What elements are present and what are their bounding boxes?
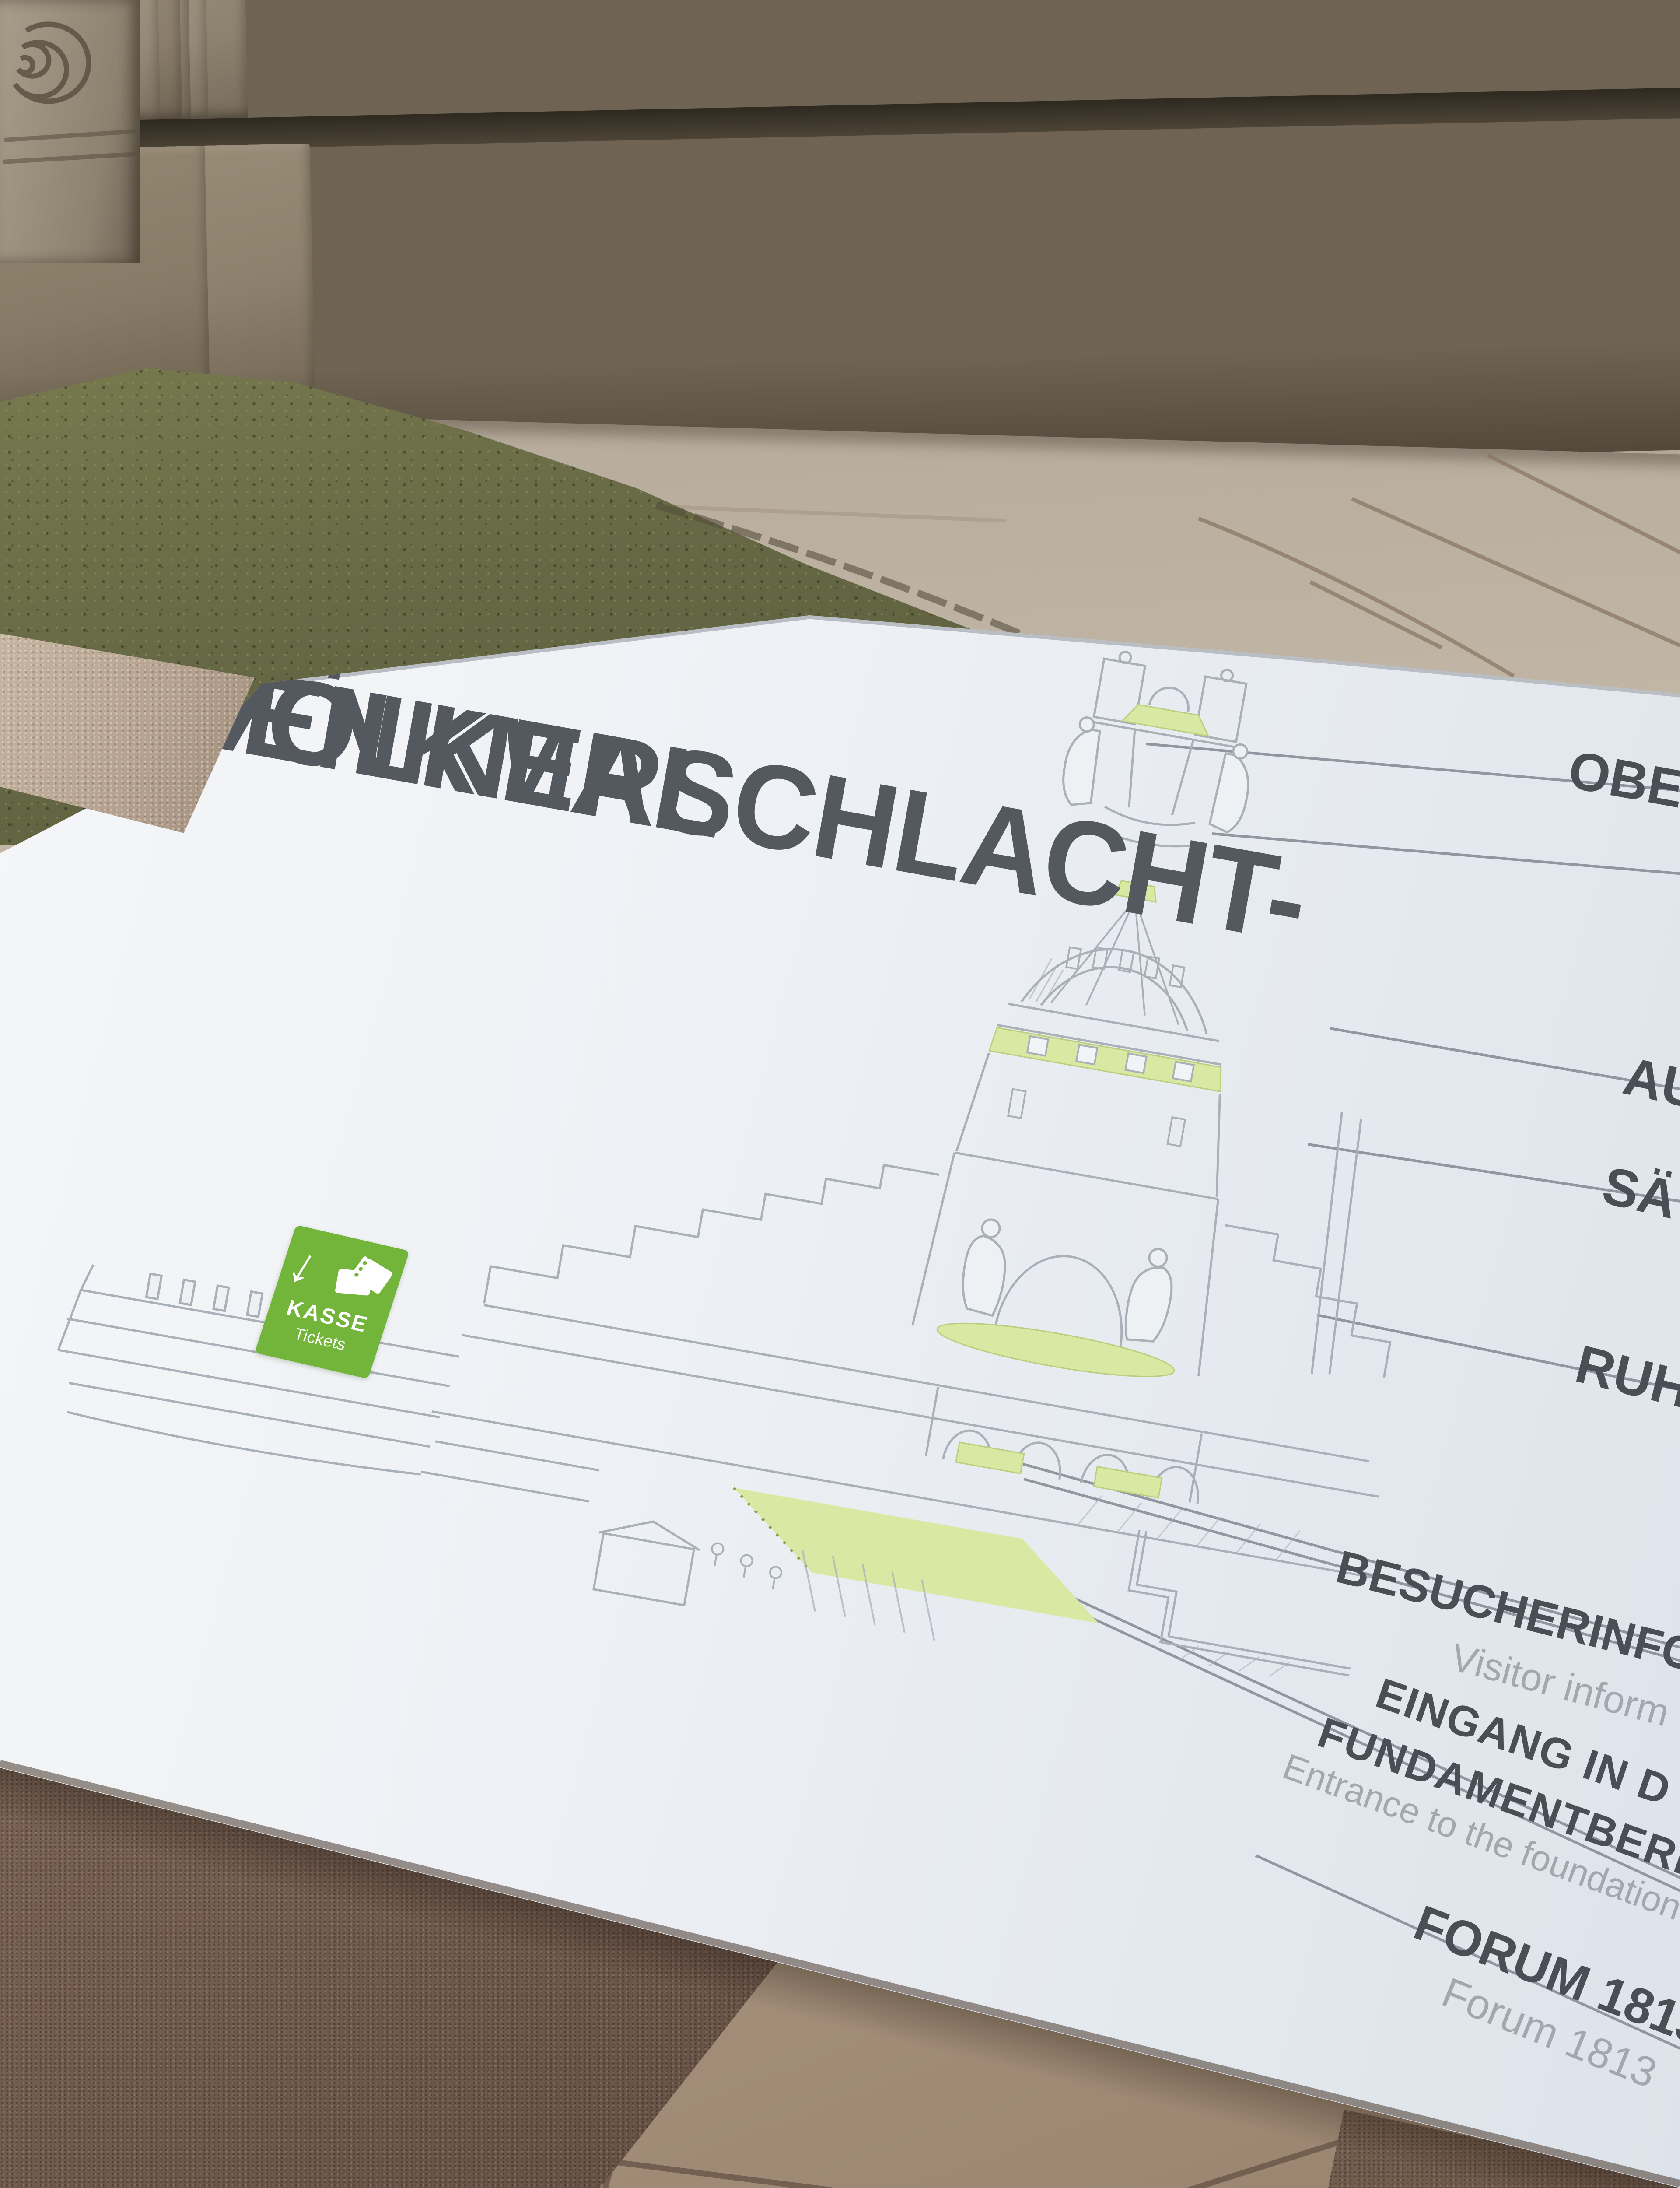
photo-scene: VÖLKERSCHLACHT- DENKMAL OBERE AU SÄ RUH … [0,0,1680,2188]
